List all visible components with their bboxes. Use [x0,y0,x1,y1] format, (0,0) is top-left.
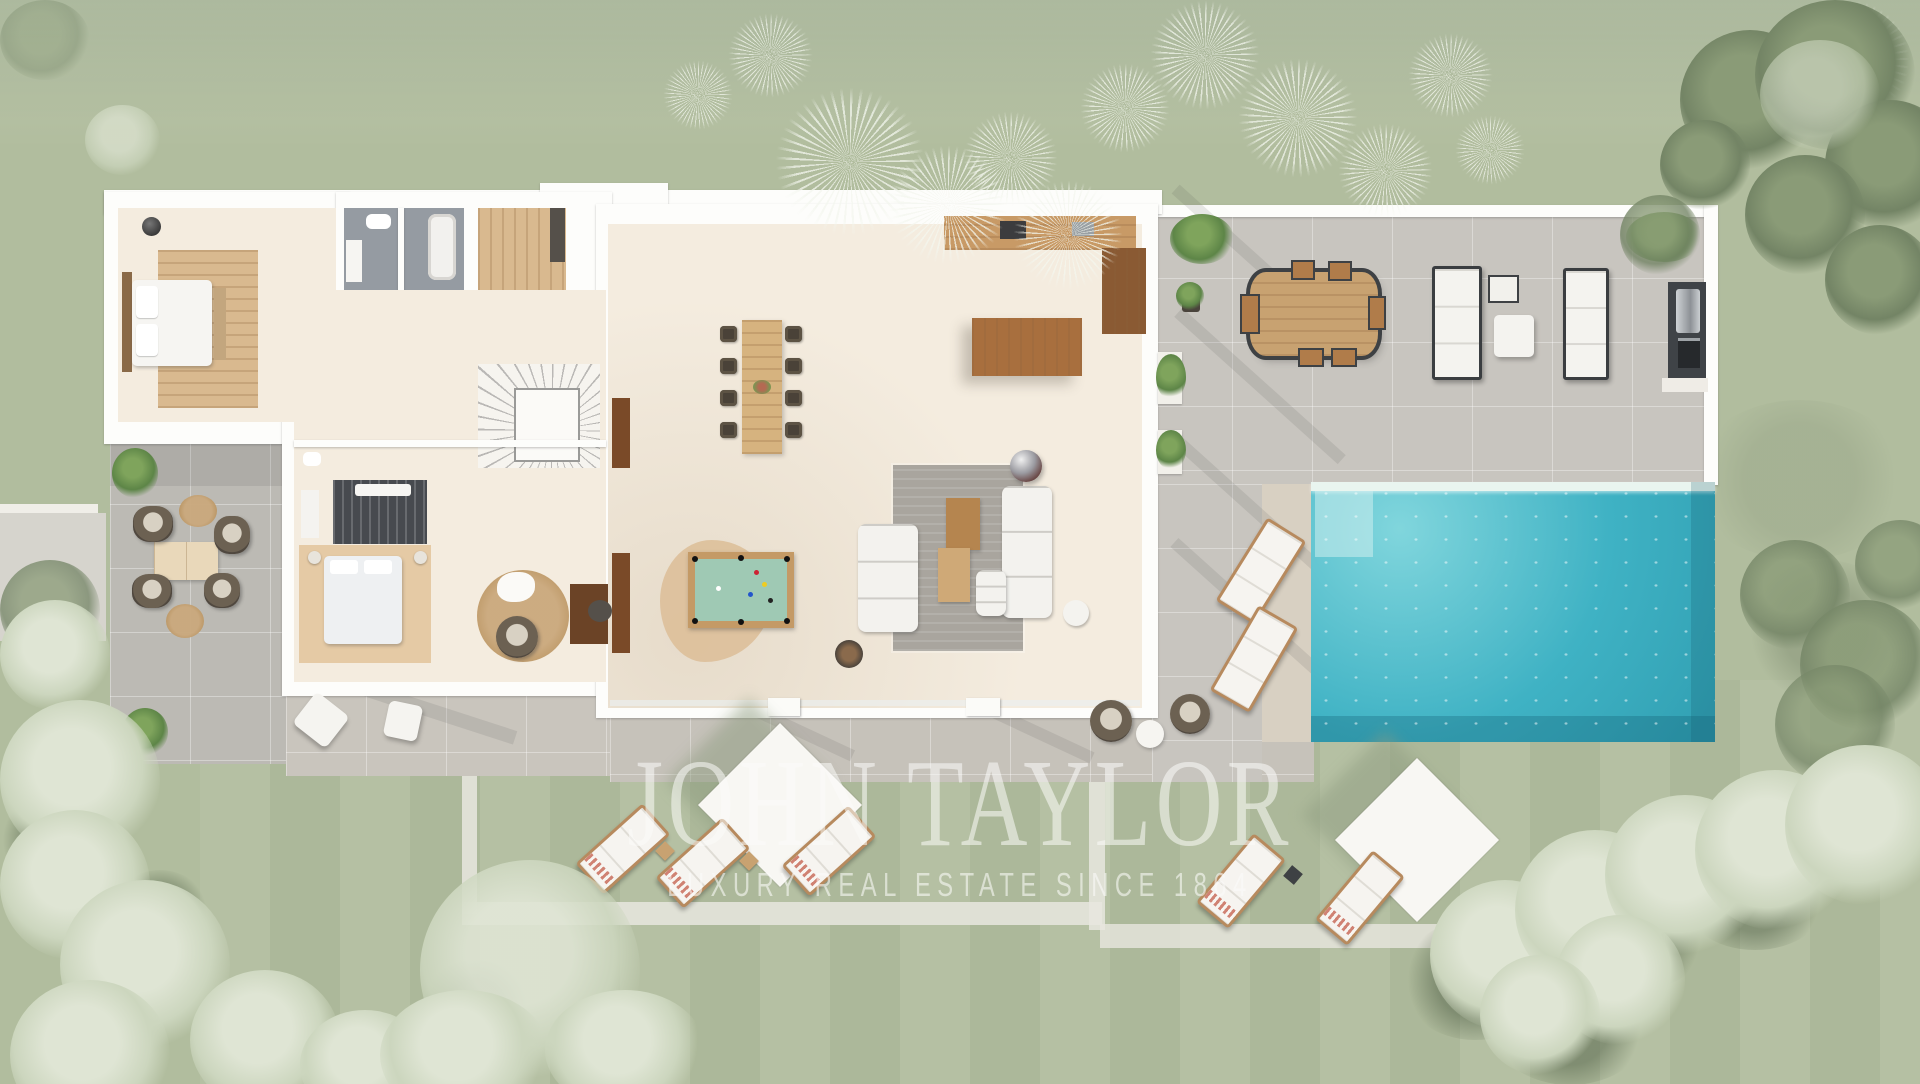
kitchen-island [972,318,1082,376]
outdoor-bench-end [1370,298,1384,328]
patio-armchair [132,574,172,608]
lounger-side-table [1490,277,1517,301]
billiard-ball [768,598,773,603]
guest-sink [301,490,319,538]
faded-shrub [85,105,160,175]
dining-chair [720,390,737,406]
master-pillow [136,286,158,318]
patio-armchair [133,506,173,542]
tree-dark-left [0,0,90,80]
guest-pillow [364,560,392,574]
bathtub [428,214,456,280]
watermark-title: JOHN TAYLOR [250,742,1671,867]
sideboard [612,553,630,653]
billiard-ball [762,582,767,587]
bbq-module [1678,338,1700,368]
tree-dark [1620,195,1700,275]
billiard-ball [748,592,753,597]
outdoor-bench-end [1242,296,1258,332]
aerial-render: JOHN TAYLOR LUXURY REAL ESTATE SINCE 186… [0,0,1920,1084]
outdoor-seat [1333,350,1355,365]
toilet [366,214,391,229]
potted-plant [1176,282,1204,310]
dining-chair [785,358,802,374]
master-headboard [122,272,132,372]
palm-tree [1013,180,1123,290]
south-pillar [966,698,1000,716]
palm-tree [663,60,733,130]
hallway-floor [336,290,606,372]
palm-tree [1408,33,1493,118]
south-glass-line [610,700,1140,706]
outdoor-dining-table [1250,272,1378,356]
tree-dark [1825,225,1920,335]
olive-canopy [1480,955,1600,1075]
round-ceiling-light [142,217,161,236]
planter-shrub [1156,354,1186,400]
guest-wall-north [294,440,606,447]
lawn-veil [0,0,1920,150]
staircase [478,364,600,468]
billiard-ball [754,570,759,575]
desk-chair [588,600,612,622]
guest-wardrobe-bench [355,484,411,496]
coffee-table-upper [946,498,980,550]
outdoor-seat [1300,350,1322,365]
sun-lounger [1563,268,1609,380]
dining-chair [720,422,737,438]
billiard-table [688,552,794,628]
outdoor-seat [1330,263,1350,279]
pocket [784,556,790,562]
patio-jute-rug [179,495,217,527]
ottoman [1494,315,1534,357]
patio-coffee-table [154,542,218,580]
terrace-corner-shrub [1170,214,1234,264]
patio-shrub [112,448,158,498]
coffee-table-lower [938,548,970,602]
olive-canopy [0,600,110,710]
dining-centerpiece [753,380,771,394]
bathroom-divider-wall [398,208,404,290]
outdoor-seat [1293,262,1313,278]
master-bed-bench [214,288,226,360]
pocket [692,618,698,624]
planter-shrub [1156,430,1186,470]
dining-chair [785,422,802,438]
guest-toilet [303,452,321,466]
sofa-left [858,524,918,632]
sofa-right-chaise [976,570,1006,616]
round-side-table-white [1063,600,1089,626]
pocket [692,556,698,562]
sun-lounger [1432,266,1482,380]
hanging-fireplace-orb [1010,450,1042,482]
palm-tree [1338,123,1433,218]
guest-stool [308,551,321,564]
palm-tree [728,13,813,98]
staircase-core [516,390,578,460]
south-pillar [768,698,800,716]
cue-ball [716,586,721,591]
nook-armchair [496,616,538,658]
left-road-edge [0,504,98,513]
watermark-subtitle: LUXURY REAL ESTATE SINCE 1864 [269,866,1651,904]
closet-wardrobe [550,208,565,262]
terrace-rattan-chair [1170,694,1210,734]
pocket [738,619,744,625]
nook-throw [497,572,535,602]
bbq-grill [1676,289,1700,333]
pool-sparkles [1311,482,1715,742]
dining-chair [720,326,737,342]
dining-chair [785,390,802,406]
vanity [346,240,362,282]
palm-tree [1455,115,1525,185]
dining-chair [785,326,802,342]
sideboard [612,398,630,468]
guest-stool [414,551,427,564]
patio-jute-rug [166,604,204,638]
sofa-right [1002,486,1052,618]
pocket [784,618,790,624]
patio-armchair [204,573,240,608]
dining-chair [720,358,737,374]
pool-terrace-east-wall [1704,205,1718,485]
round-side-table-dark [835,640,863,668]
tree-highlight [1760,40,1880,150]
pocket [738,555,744,561]
patio-armchair [214,516,250,554]
pool [1311,482,1715,742]
guest-pillow [330,560,358,574]
master-pillow [136,324,158,356]
outdoor-kitchen-step [1662,378,1708,392]
